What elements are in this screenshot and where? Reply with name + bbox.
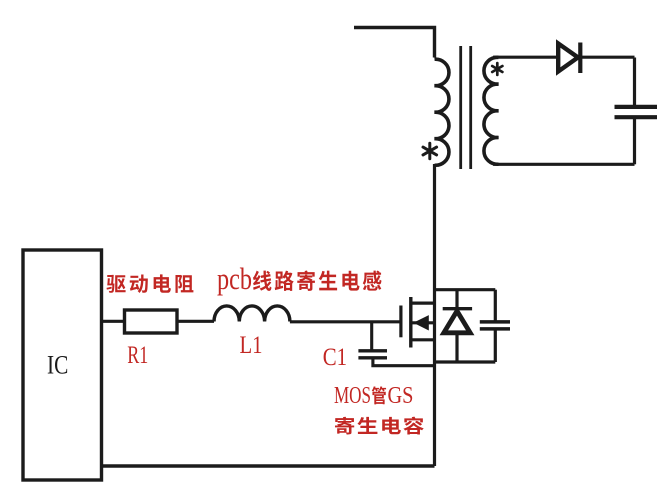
svg-text:IC: IC [47, 350, 68, 379]
svg-text:C1: C1 [323, 344, 347, 371]
svg-text:R1: R1 [127, 342, 148, 369]
svg-text:pcb: pcb [217, 261, 252, 296]
svg-text:MOS: MOS [334, 383, 371, 409]
svg-text:GS: GS [388, 383, 414, 409]
svg-text:L1: L1 [240, 332, 263, 359]
